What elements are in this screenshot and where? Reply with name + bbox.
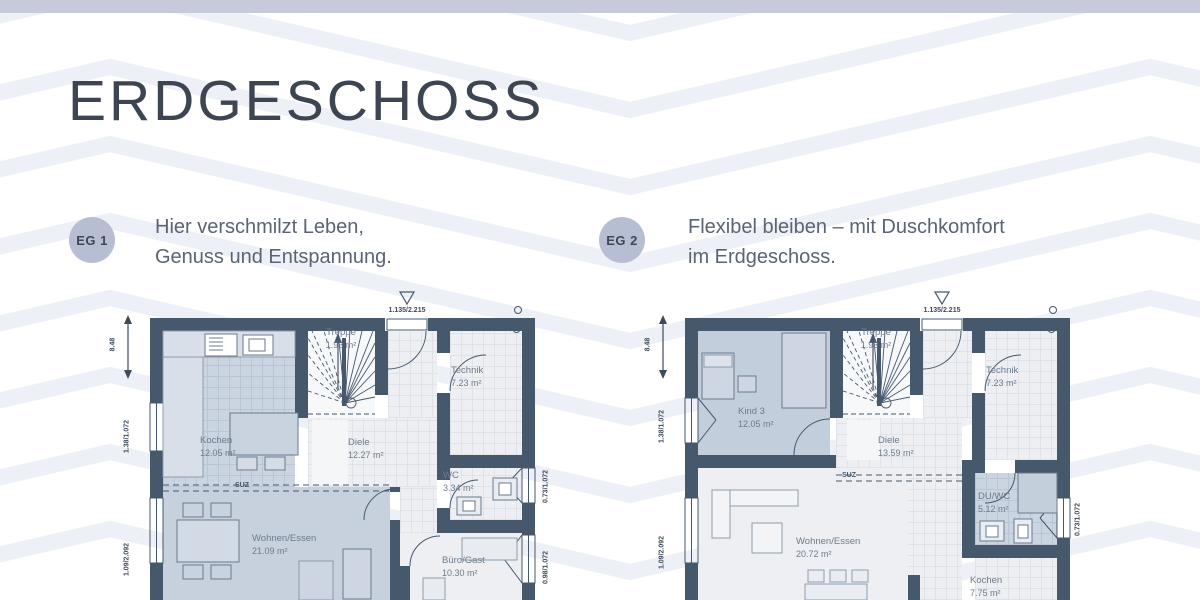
label-diele: Diele 13.59 m² — [878, 435, 914, 459]
label-wohnen-essen: Wohnen/Essen 21.09 m² — [252, 533, 316, 557]
badge-eg2: EG 2 — [599, 217, 645, 263]
dim-entrance: 1.135/2.215 — [381, 307, 433, 314]
suz-line — [836, 475, 972, 481]
dim-window-left-lower: 1.09/2.092 — [124, 530, 131, 590]
badge-eg1: EG 1 — [69, 217, 115, 263]
label-wc: WC 3.34 m² — [443, 470, 474, 494]
floorplan-eg1: Treppe 1.93 m² Technik 7.23 m² Kochen 12… — [105, 283, 570, 600]
label-suz: SUZ — [842, 472, 856, 479]
height-dimension-arrow — [659, 315, 667, 379]
dim-window-left-upper: 1.38/1.072 — [124, 407, 131, 467]
dim-height: 8.48 — [110, 315, 117, 375]
floorplan-eg2: Treppe 1.93 m² Technik 7.23 m² Kind 3 12… — [640, 283, 1105, 600]
dim-window-right-upper: 0.73/1.072 — [543, 457, 550, 517]
stair-landing — [847, 420, 880, 460]
downpipe-icon — [1050, 307, 1057, 314]
entrance-door — [922, 292, 962, 369]
dim-height: 8.48 — [645, 315, 652, 375]
downpipe-icon — [515, 307, 522, 314]
dim-window-right-lower: 0.98/1.072 — [543, 538, 550, 598]
description-eg2-line2: im Erdgeschoss. — [688, 242, 1005, 272]
label-technik: Technik 7.23 m² — [986, 365, 1018, 389]
label-kochen: Kochen 7.75 m² — [970, 575, 1002, 599]
stair-landing — [312, 420, 348, 485]
dim-window-left-upper: 1.38/1.072 — [659, 397, 666, 457]
entrance-marker-icon — [400, 292, 414, 304]
height-dimension-arrow — [124, 315, 132, 379]
label-suz: SUZ — [235, 482, 249, 489]
label-kochen: Kochen 12.05 m² — [200, 435, 236, 459]
description-eg1-line1: Hier verschmilzt Leben, — [155, 212, 392, 242]
label-kind3: Kind 3 12.05 m² — [738, 406, 774, 430]
entrance-marker-icon — [935, 292, 949, 304]
label-buero-gast: Büro/Gast 10.30 m² — [442, 555, 485, 579]
dim-window-right-upper: 0.73/1.072 — [1075, 490, 1082, 550]
suz-line — [163, 485, 390, 491]
label-treppe: Treppe 1.93 m² — [312, 327, 370, 351]
description-eg2-line1: Flexibel bleiben – mit Duschkomfort — [688, 212, 1005, 242]
entrance-door — [387, 292, 427, 369]
description-eg2: Flexibel bleiben – mit Duschkomfort im E… — [688, 212, 1005, 272]
label-diele: Diele 12.27 m² — [348, 437, 384, 461]
kids-room-furniture — [702, 333, 826, 408]
dim-window-left-lower: 1.09/2.092 — [659, 523, 666, 583]
top-accent-bar — [0, 0, 1200, 13]
page-title: ERDGESCHOSS — [68, 68, 544, 134]
label-wohnen-essen: Wohnen/Essen 20.72 m² — [796, 536, 860, 560]
description-eg1: Hier verschmilzt Leben, Genuss und Entsp… — [155, 212, 392, 272]
label-duwc: DU/WC 5.12 m² — [978, 491, 1010, 515]
label-technik: Technik 7.23 m² — [451, 365, 483, 389]
dim-entrance: 1.135/2.215 — [916, 307, 968, 314]
label-treppe: Treppe 1.93 m² — [847, 327, 905, 351]
description-eg1-line2: Genuss und Entspannung. — [155, 242, 392, 272]
